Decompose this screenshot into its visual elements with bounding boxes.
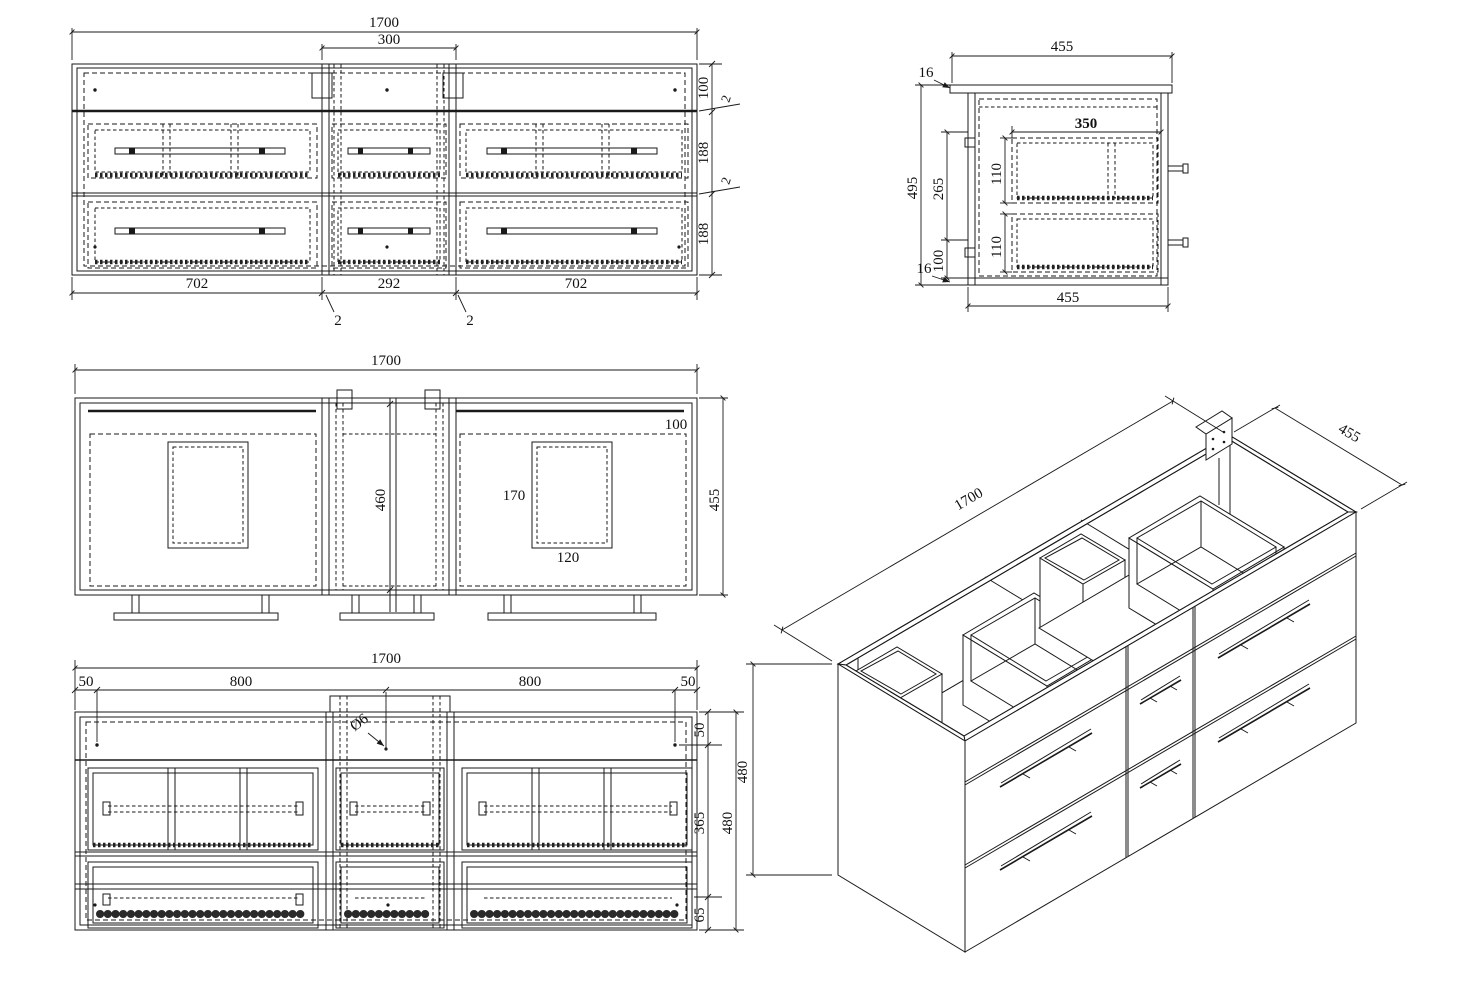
dim-label-side-height: 495 — [905, 177, 921, 200]
dim-label-rear-total: 1700 — [371, 651, 401, 667]
dim-label-rear-bottom-gap: 65 — [692, 908, 708, 923]
dim-label-iso-length: 1700 — [952, 485, 986, 514]
front-drawer-row-top — [88, 124, 688, 178]
dim-label-side-lower: 100 — [931, 250, 947, 273]
dim-label-front-gap2: 2 — [718, 175, 734, 186]
dim-label-rear-span-right: 800 — [519, 674, 542, 690]
dim-label-iso-depth: 455 — [1335, 421, 1363, 446]
side-cabinet-outline — [950, 85, 1172, 285]
side-drawer-boxes — [1012, 138, 1188, 272]
dim-label-front-right-span: 702 — [565, 276, 588, 292]
dim-label-front-leader1: 2 — [334, 313, 342, 329]
dim-label-rear-edge-right: 50 — [681, 674, 696, 690]
isometric-view: 1700 455 480 — [735, 396, 1407, 952]
dim-label-front-drawer2: 188 — [696, 223, 712, 246]
front-elevation-view: 1700 300 100 2 188 2 188 — [72, 15, 740, 329]
side-dimensions: 455 16 495 265 100 16 350 110 — [905, 39, 1172, 312]
rear-elevation-view: 1700 50 800 800 50 Ø6 50 — [72, 651, 744, 933]
dim-label-plan-cutout-width: 120 — [557, 550, 580, 566]
front-drawer-row-bottom — [88, 202, 688, 268]
dim-label-side-bottom-thickness: 16 — [917, 261, 933, 277]
side-section-view: 455 16 495 265 100 16 350 110 — [905, 39, 1188, 312]
dim-label-front-top-rail: 100 — [696, 77, 712, 100]
dim-label-front-gap1: 2 — [718, 93, 734, 104]
dim-label-plan-center: 460 — [373, 489, 389, 512]
plan-dimensions: 1700 100 460 170 120 455 — [75, 353, 728, 595]
dim-label-side-drawer1: 110 — [989, 163, 1005, 185]
dim-label-iso-height: 480 — [735, 761, 751, 784]
dim-label-front-leader2: 2 — [466, 313, 474, 329]
dim-label-rear-mid-span: 365 — [692, 812, 708, 835]
plan-view: 1700 100 460 170 120 455 — [75, 353, 728, 620]
plan-wall-feet — [114, 595, 656, 620]
dim-label-front-left-span: 702 — [186, 276, 209, 292]
dim-label-side-drawer2: 110 — [989, 236, 1005, 258]
dim-label-rear-hole: Ø6 — [347, 711, 372, 735]
dim-label-plan-cutout-depth: 170 — [503, 488, 526, 504]
dim-label-plan-total: 1700 — [371, 353, 401, 369]
dim-label-side-top-thickness: 16 — [919, 65, 935, 81]
dim-label-front-middle: 300 — [378, 32, 401, 48]
dim-label-side-top-depth: 455 — [1051, 39, 1074, 55]
dim-label-plan-depth: 455 — [707, 489, 723, 512]
dim-label-side-bottom-depth: 455 — [1057, 290, 1080, 306]
rear-drawer-row-top — [88, 768, 692, 850]
dim-label-rear-top-gap: 50 — [692, 723, 708, 738]
technical-drawing-sheet: 1700 300 100 2 188 2 188 — [0, 0, 1464, 1000]
rear-dimensions: 1700 50 800 800 50 Ø6 50 — [72, 651, 744, 933]
dim-label-front-drawer1: 188 — [696, 142, 712, 165]
rear-drawer-row-bottom — [75, 862, 697, 928]
dim-label-side-upper: 265 — [931, 178, 947, 201]
dim-label-rear-height: 480 — [720, 812, 736, 835]
dim-label-front-mid-span: 292 — [378, 276, 401, 292]
vanity-technical-drawing: 1700 300 100 2 188 2 188 — [0, 0, 1464, 1000]
dim-label-side-inner-width: 350 — [1075, 116, 1098, 132]
dim-label-rear-span-left: 800 — [230, 674, 253, 690]
front-cabinet-outline — [72, 64, 697, 275]
dim-label-front-total: 1700 — [369, 15, 399, 31]
dim-label-rear-edge-left: 50 — [79, 674, 94, 690]
dim-label-plan-back-rail: 100 — [665, 417, 688, 433]
